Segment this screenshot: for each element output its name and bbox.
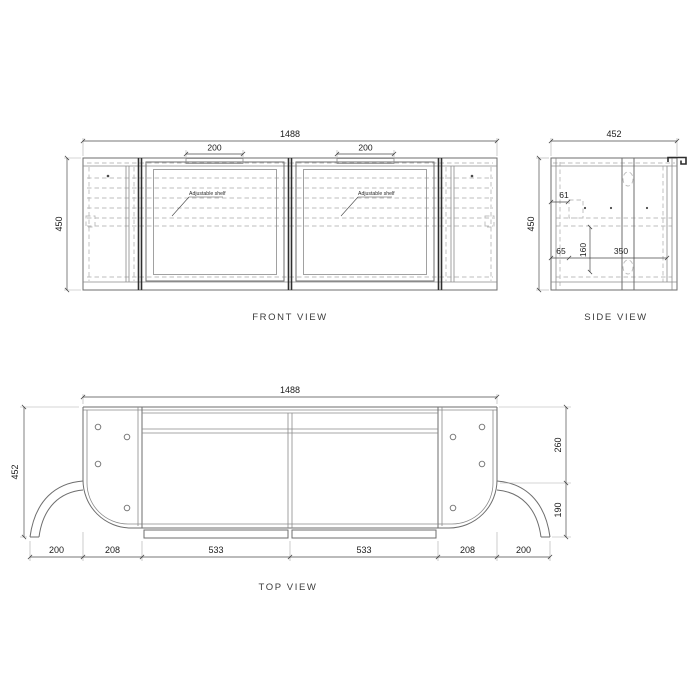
bottom-dim-value: 200 [49,545,64,555]
hidden-knob-top [623,172,633,186]
front-dim-height: 450 [54,158,81,290]
panel-hole [95,461,101,467]
panel-hole [479,424,485,430]
shelf-note-right-leader [341,197,358,216]
panel-hole [95,424,101,430]
side-pin-hole [584,207,586,209]
front-dim-handle-left: 200 [186,143,243,158]
front-left-door [146,162,284,281]
shelf-note-left-text: Adjustable shelf [189,191,226,197]
bottom-dim-value: 533 [208,545,223,555]
front-dim-width: 1488 [83,129,497,156]
shelf-note-left-leader [172,197,189,216]
top-dim-bottom-chain: 200 208 533 533 208 200 [30,532,550,561]
drawing-sheet: Adjustable shelf Adjustable shelf 1488 2… [0,0,700,700]
side-dim-height: 450 [526,158,549,290]
top-left-door-front [144,530,288,538]
top-left-panel-outer [83,407,142,528]
panel-hole [124,505,130,511]
panel-hole [479,461,485,467]
left-wing-outer-curve [30,481,83,537]
right-wing-inner-curve [497,490,541,537]
side-view-label: SIDE VIEW [584,312,648,323]
front-width-value: 1488 [280,129,300,139]
drawing-canvas: Adjustable shelf Adjustable shelf 1488 2… [0,0,700,700]
side-interior-depth-value: 350 [614,246,628,256]
front-handle-right-value: 200 [358,143,372,153]
top-view-label: TOP VIEW [259,582,318,593]
top-left-wing [30,481,83,537]
side-view: 452 450 61 65 350 160 SIDE VIEW [526,129,686,323]
top-right-back-value: 260 [553,437,563,452]
side-height-value: 450 [526,216,536,231]
top-right-panel-outer [438,407,497,528]
side-carcass-outline [551,158,677,290]
shelf-note-right-text: Adjustable shelf [358,191,395,197]
front-right-fixing-hole [471,175,474,178]
side-shelf-gap-value: 160 [578,243,588,257]
front-shelf-note-right: Adjustable shelf [341,191,395,216]
left-wing-inner-curve [39,490,83,537]
side-bottom-rail-value: 65 [556,246,566,256]
side-pin-hole [646,207,648,209]
front-handle-left-value: 200 [207,143,221,153]
bottom-dim-value: 533 [356,545,371,555]
front-right-door-inset [304,170,427,275]
front-height-value: 450 [54,216,64,231]
panel-hole [124,434,130,440]
front-view-label: FRONT VIEW [252,312,327,323]
side-dim-shelf-gap: 160 [578,227,590,272]
top-right-front-value: 190 [553,502,563,517]
side-width-value: 452 [606,129,621,139]
side-top-rail-value: 61 [559,190,569,200]
side-hidden-lines [553,162,675,286]
top-width-value: 1488 [280,385,300,395]
side-dim-width: 452 [551,129,677,156]
hidden-bracket-recess [569,200,583,218]
side-pin-hole [610,207,612,209]
front-view: Adjustable shelf Adjustable shelf 1488 2… [54,129,497,323]
hidden-knob-bottom [623,260,633,274]
bottom-dim-value: 208 [105,545,120,555]
panel-hole [450,434,456,440]
top-depth-value: 452 [10,464,20,479]
front-left-fixing-hole [107,175,110,178]
top-right-door-front [292,530,436,538]
front-hidden-lines [86,163,494,281]
bottom-dim-value: 208 [460,545,475,555]
front-shelf-note-left: Adjustable shelf [172,191,226,216]
top-right-wing [497,481,550,537]
panel-hole [450,505,456,511]
top-dim-width: 1488 [83,385,497,404]
front-left-door-inset [154,170,277,275]
front-dim-handle-right: 200 [337,143,394,158]
top-dim-right: 260 190 [499,407,571,537]
right-wing-outer-curve [497,481,550,537]
front-right-door [296,162,434,281]
top-view: 1488 452 260 190 [10,385,571,593]
bottom-dim-value: 200 [516,545,531,555]
